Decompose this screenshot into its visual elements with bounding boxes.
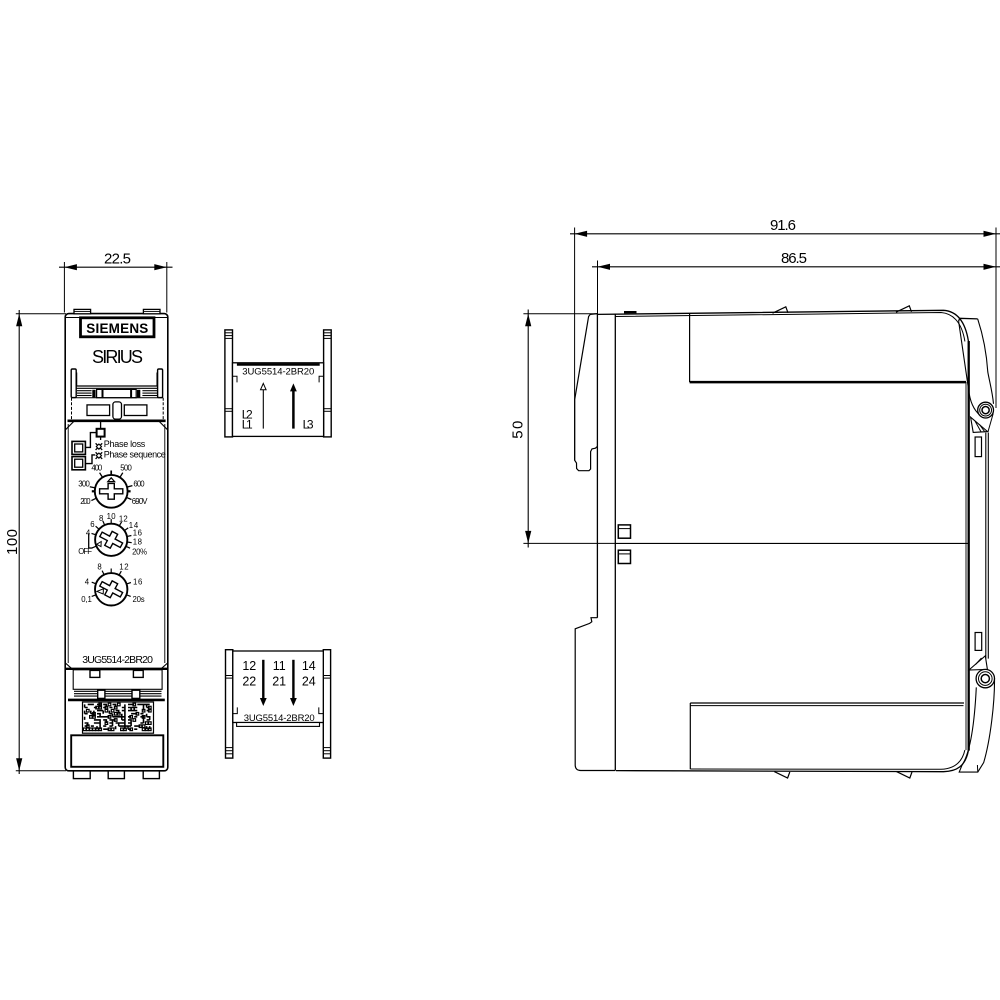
svg-text:8: 8: [97, 563, 101, 572]
svg-text:12: 12: [242, 659, 256, 673]
svg-text:22: 22: [242, 674, 256, 688]
svg-text:86.5: 86.5: [781, 250, 807, 267]
svg-text:18: 18: [133, 538, 142, 547]
svg-text:3UG5514-2BR20: 3UG5514-2BR20: [82, 654, 153, 666]
svg-text:10: 10: [107, 512, 117, 521]
svg-text:91.6: 91.6: [770, 217, 796, 234]
svg-text:300: 300: [78, 480, 90, 489]
svg-text:16: 16: [133, 529, 142, 538]
svg-text:100: 100: [4, 529, 21, 555]
svg-text:16: 16: [133, 578, 142, 587]
svg-text:6: 6: [90, 520, 94, 529]
svg-text:12: 12: [119, 515, 128, 524]
svg-text:22.5: 22.5: [104, 251, 131, 268]
svg-text:11: 11: [273, 659, 286, 673]
svg-text:690V: 690V: [132, 497, 148, 506]
svg-text:50: 50: [510, 421, 527, 439]
svg-text:600: 600: [133, 480, 145, 489]
svg-text:0,1: 0,1: [81, 595, 92, 604]
svg-text:3UG5514-2BR20: 3UG5514-2BR20: [242, 367, 314, 378]
svg-text:400: 400: [91, 464, 102, 473]
svg-text:21: 21: [272, 674, 286, 688]
svg-text:20s: 20s: [133, 595, 145, 604]
svg-text:24: 24: [302, 674, 316, 688]
svg-text:4: 4: [86, 529, 91, 538]
svg-text:SIRIUS: SIRIUS: [92, 347, 143, 367]
svg-text:12: 12: [119, 563, 128, 572]
svg-text:4: 4: [85, 578, 90, 587]
svg-text:20%: 20%: [132, 547, 147, 556]
svg-text:500: 500: [120, 464, 132, 473]
svg-text:Phase sequence: Phase sequence: [104, 449, 166, 459]
svg-text:SIEMENS: SIEMENS: [86, 321, 148, 336]
svg-text:OFF: OFF: [78, 547, 92, 556]
svg-text:L3: L3: [303, 417, 314, 431]
svg-text:200: 200: [80, 497, 91, 506]
svg-text:L1: L1: [242, 417, 253, 431]
svg-text:Phase loss: Phase loss: [104, 439, 146, 449]
svg-text:3UG5514-2BR20: 3UG5514-2BR20: [244, 713, 315, 724]
svg-text:8: 8: [99, 514, 103, 523]
svg-text:14: 14: [302, 659, 316, 673]
